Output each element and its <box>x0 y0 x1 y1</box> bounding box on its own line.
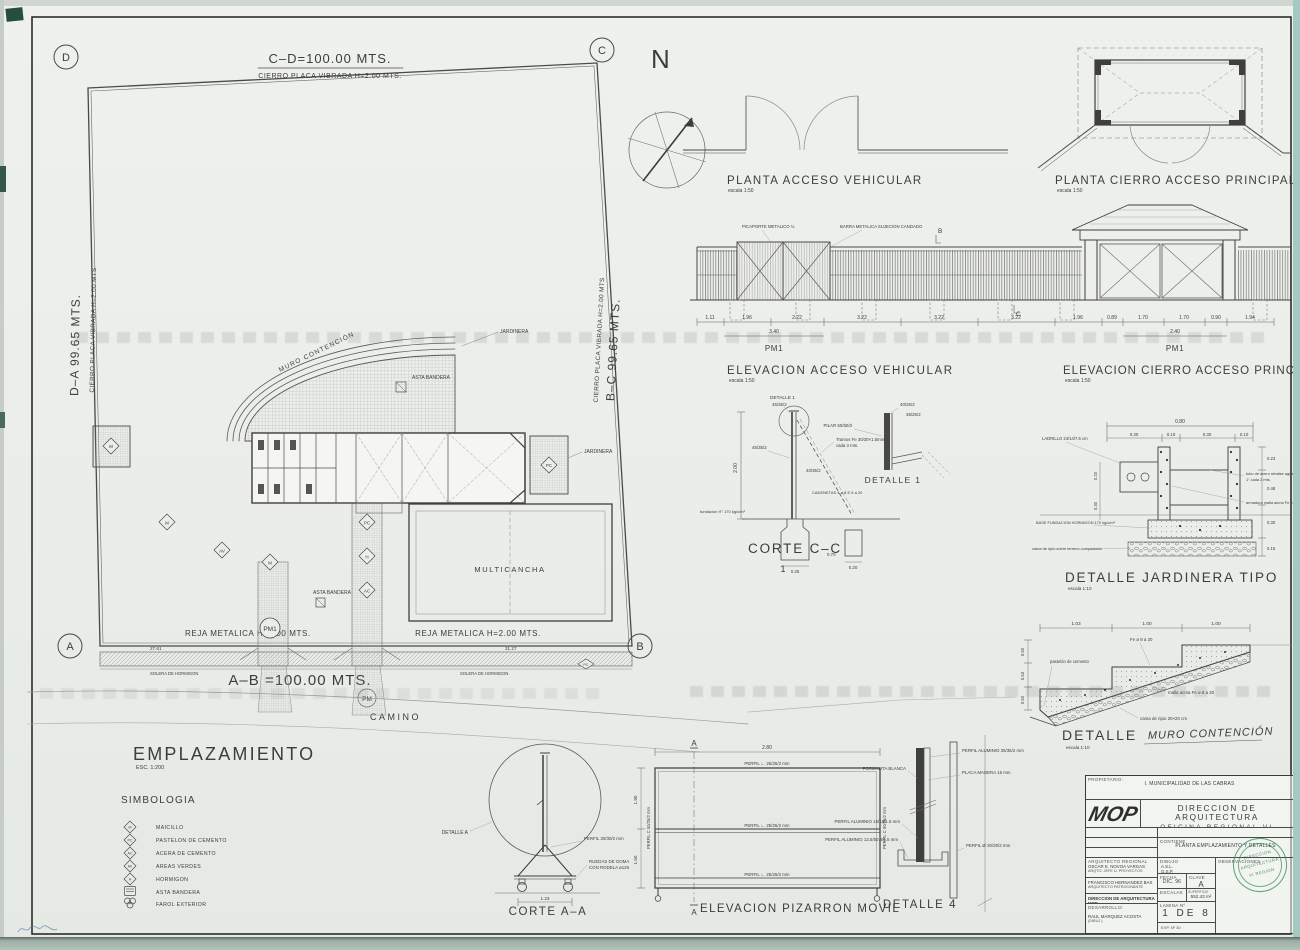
symbol-pc: PC <box>364 521 371 526</box>
pizarron-marker-top: A <box>691 739 697 748</box>
legend-sym: M <box>129 826 132 830</box>
pizarron-perfil-bot: PERFIL ∟ 25/25/2 mm <box>744 872 789 877</box>
legend-label: MAICILLO <box>156 825 183 831</box>
org-line1: DIRECCION DE ARQUITECTURA <box>1141 804 1293 822</box>
dim-bc: B–C 99.65 MTS. <box>603 298 622 401</box>
farol-icon <box>125 898 136 908</box>
detalle1-a2: 35/25/2 <box>906 412 921 417</box>
jard-dim-right: 0.30 <box>1267 520 1276 525</box>
arquitecto-title: ARQTO. JEFE U. PROYECTOS <box>1086 869 1157 873</box>
corner-d-label: D <box>62 52 70 64</box>
expediente: EXP. Nº 30 <box>1158 923 1215 930</box>
dim-sidewalk-left: 27.61 <box>150 646 162 651</box>
jard-dim-right: 0.48 <box>1267 486 1276 491</box>
muro-dim-left: 0.50 <box>1020 647 1025 656</box>
detalle1-a1: 40/25/2 <box>900 402 915 407</box>
planta-cap-title: PLANTA CIERRO ACCESO PRINCIPAL <box>1055 175 1296 187</box>
escalas-label: ESCALAS <box>1158 889 1186 895</box>
elev-av-scale: escala 1:50 <box>729 378 755 384</box>
fence-dim: 3.22 <box>857 315 867 321</box>
fence-dim: 1.94 <box>1245 315 1255 321</box>
muro-title-1: DETALLE <box>1062 727 1137 743</box>
reja-left: REJA METALICA H=2.00 MTS. <box>185 629 311 638</box>
detalle1-a3: PILAR 50/50/3 <box>823 423 852 428</box>
fence-dim: 1.96 <box>1073 315 1083 321</box>
jard-dim-left: 0.30 <box>1093 501 1098 510</box>
muro-dim-top: 1.03 <box>1071 621 1081 627</box>
fence-dim: 1.96 <box>742 315 752 321</box>
firma-line: DIRECCION DE ARQUITECTURA MOP <box>1086 894 1157 904</box>
emplazamiento-scale: ESC. 1:200 <box>136 765 164 771</box>
asta-bandera-label-2: ASTA BANDERA <box>313 590 352 596</box>
detalle-4: FORMALITA BLANCA PERFIL ALUMINIO 15/15/1… <box>825 735 1024 912</box>
scan-edge-mark <box>0 166 6 192</box>
scan-edge-mark <box>0 412 5 428</box>
drawing-sheet: D C A B C–D=100.00 MTS. CIERRO PLACA VIB… <box>0 0 1300 950</box>
detalle4-a1: FORMALITA BLANCA <box>863 766 906 771</box>
detalle4-a4: PLACA MADERA 15 mm <box>962 770 1011 775</box>
muro-a2: pastelón de cemento <box>1050 659 1090 664</box>
clave-value: A <box>1187 880 1215 889</box>
jard-tubo1: tubo de acero rebalse agua riego <box>1246 471 1300 476</box>
legend-label: AREAS VERDES <box>156 864 201 870</box>
desarrollo-name: RAUL MARQUEZ ACOSTA <box>1086 910 1157 919</box>
detalle1-title: DETALLE 1 <box>865 475 922 485</box>
detalle4-a6: PERFIL ALUMINIO 35/35/2 mm <box>962 748 1024 753</box>
planta-cap-scale: escala 1:50 <box>1057 188 1083 194</box>
north-arrow-icon: N <box>628 44 706 188</box>
corte-cc-height: 2.00 <box>733 463 739 473</box>
fence-dim: 1.11 <box>705 315 715 321</box>
symbol-av: AV <box>219 549 225 554</box>
jard-dim-top: 0.10 <box>1167 432 1176 437</box>
jard-dim-top: 0.30 <box>1130 432 1139 437</box>
jard-dim-top: 0.10 <box>1240 432 1249 437</box>
fence-dim: 3.22 <box>1011 315 1021 321</box>
corte-cc-d3: 0.20 <box>849 565 858 570</box>
jardinera-label-2: JARDINERA <box>584 449 613 455</box>
title-block: PROPIETARIO: I. MUNICIPALIDAD DE LAS CAB… <box>1085 775 1294 934</box>
solera-label-2: SOLERA DE HORMIGON <box>460 671 508 676</box>
scan-bleed-stripe <box>690 686 1270 697</box>
corte-cc-cadenetas: CADENETAS 4 ø 8 E 6 a 20 <box>812 490 863 495</box>
jard-dim-left: 0.20 <box>1093 471 1098 480</box>
muro-a1: Fe ø 8 a 20 <box>1130 637 1153 642</box>
corte-cc-brace2: cada 3 mts. <box>836 443 858 448</box>
pizarron-perfil-left: PERFIL C 50/25/2 mm <box>646 807 651 849</box>
corner-c-label: C <box>598 45 606 57</box>
jard-ladrillo: LADRILLO 24/14/7.5 cm <box>1042 436 1088 441</box>
corte-aa: DETALLE A 1.23 PERFIL 30/30/2 mm RUEDAS … <box>442 744 630 918</box>
fence-dim: 0.90 <box>1211 315 1221 321</box>
planta-acceso-vehicular: PLANTA ACCESO VEHICULAR escala 1:50 <box>683 96 1008 194</box>
pizarron-marker-bottom: A <box>691 908 697 917</box>
scan-bleed-stripe <box>40 688 600 699</box>
symbol-m-left: M <box>109 444 113 449</box>
pm1-right: PM1 <box>1166 344 1184 353</box>
fence-dim: 3.22 <box>934 315 944 321</box>
corte-aa-ruedas1: RUEDAS DE GOMA <box>589 859 629 864</box>
legend-label: ACERA DE CEMENTO <box>156 851 216 857</box>
muro-scale: escala 1:10 <box>1066 745 1090 750</box>
gate-note-1: PICAPORTE METALICO ¾ <box>742 224 795 229</box>
legend-label: ASTA BANDERA <box>156 890 200 896</box>
superficie-value: 552.43 m² <box>1187 894 1215 899</box>
elev-av-title: ELEVACION ACCESO VEHICULAR <box>727 365 954 377</box>
legend-label: PASTELON DE CEMENTO <box>156 838 227 844</box>
jard-total: 0.80 <box>1175 419 1185 425</box>
legend-label: FAROL EXTERIOR <box>156 902 206 908</box>
symbol-m-2: M <box>268 561 272 566</box>
fence-da: CIERRO PLACA VIBRADA H=2.00 MTS <box>89 267 98 392</box>
pizarron-perfil-top: PERFIL ∟ 25/25/2 mm <box>744 761 789 766</box>
fence-dim: 1.70 <box>1179 315 1189 321</box>
north-label: N <box>651 44 670 74</box>
scan-edge-bottom <box>0 937 1300 950</box>
scan-edge-left <box>0 0 4 950</box>
planta-cierro-acceso-principal: PLANTA CIERRO ACCESO PRINCIPAL escala 1:… <box>1038 48 1296 194</box>
reja-right: REJA METALICA H=2.00 MTS. <box>415 629 541 638</box>
scan-corner-mark <box>5 7 23 22</box>
jardinera-title: DETALLE JARDINERA TIPO <box>1065 570 1278 585</box>
elev-cap-scale: escala 1:50 <box>1065 378 1091 384</box>
legend-sym: AV <box>128 865 133 869</box>
symbol-m: M <box>165 521 169 526</box>
propietario-value: I. MUNICIPALIDAD DE LAS CABRAS <box>1086 782 1293 788</box>
symbol-pc-right: PC <box>546 463 553 468</box>
planta-av-scale: escala 1:50 <box>728 188 754 194</box>
corner-b-label: B <box>636 641 643 653</box>
lamina-value: 1 DE 8 <box>1158 908 1215 919</box>
pizarron-perfil-mid: PERFIL ∟ 25/25/2 mm <box>744 823 789 828</box>
simbologia-legend: SIMBOLOGIA M PC AC AV H <box>121 795 227 908</box>
corner-a-label: A <box>66 641 74 653</box>
simbologia-title: SIMBOLOGIA <box>121 795 196 806</box>
fence-cd: CIERRO PLACA VIBRADA H=2.00 MTS. <box>258 73 401 80</box>
solera-label-1: SOLERA DE HORMIGON <box>150 671 198 676</box>
pizarron-perfil-right: PERFIL C 50/25/2 mm <box>882 807 887 849</box>
jardinera-scale: escala 1:10 <box>1068 586 1092 591</box>
corte-aa-perfil: PERFIL 30/30/2 mm <box>584 836 624 841</box>
pizarron-title: ELEVACION PIZARRON MOVIL <box>700 903 900 915</box>
desarrollo-title: (DIBUJ.) <box>1086 919 1157 923</box>
corte-cc-fund: fundación H° 170 kg/c/m³ <box>700 509 746 514</box>
detalle4-a3: PERFIL ALUMINIO 13.5/50.8/1.5 mm <box>825 837 898 842</box>
detalle4-title: DETALLE 4 <box>883 899 957 911</box>
asta-bandera-label-1: ASTA BANDERA <box>412 375 451 381</box>
dim-da: D–A 99.65 MTS. <box>67 294 83 396</box>
corte-cc-title: CORTE C–C <box>748 541 842 556</box>
jard-dim-top: 0.30 <box>1203 432 1212 437</box>
pizarron-dim-w: 2.80 <box>762 745 772 751</box>
jard-dim-right: 0.23 <box>1267 456 1276 461</box>
corte-cc-num: 1 <box>780 564 785 574</box>
handwritten-mark <box>14 920 60 938</box>
corte-cc-a1: 45/35/2 <box>752 445 767 450</box>
legend-sym: PC <box>128 839 133 843</box>
detalle4-a2: PERFIL ALUMINIO 15/15/1.5 mm <box>835 819 901 824</box>
pm1-marker: PM1 <box>263 626 277 633</box>
jard-ripio: cama de ripio sobre terreno compactado <box>1032 546 1102 551</box>
fence-dim: 2.22 <box>792 315 802 321</box>
patrocinante-title: ARQUITECTO PATROCINANTE <box>1086 885 1157 889</box>
dim-cd: C–D=100.00 MTS. <box>268 51 391 66</box>
pizarron-dim-h2: 1.50 <box>633 855 638 864</box>
pm1-left: PM1 <box>765 344 783 353</box>
corte-cc-callout2: 45/35/2 <box>772 402 787 407</box>
symbol-ac: AC <box>364 589 371 594</box>
legend-label: HORMIGON <box>156 877 188 883</box>
corte-cc-brace1: Tramos Fe 30/30×1.5mm <box>836 437 885 442</box>
portico-elevation <box>1072 205 1248 300</box>
muro-title-2: MURO CONTENCIÓN <box>1148 725 1274 742</box>
corte-aa-ruedas2: CON RODELA ø125 <box>589 865 630 870</box>
elevacion-pizarron: 2.80 A A 1.90 1.50 PERFIL ∟ 25/25/2 mm P… <box>633 739 900 917</box>
elev-cap-title: ELEVACION CIERRO ACCESO PRINCIPAL <box>1063 365 1300 377</box>
emplazamiento-title-group: EMPLAZAMIENTO ESC. 1:200 <box>133 744 315 771</box>
emplazamiento-title: EMPLAZAMIENTO <box>133 744 315 764</box>
detalle-a-label: DETALLE A <box>442 830 469 836</box>
fence-dim: 1.70 <box>1138 315 1148 321</box>
fence-dim: 0.89 <box>1107 315 1117 321</box>
detalle4-a5: PERFIL Ø 30/30/2 mm <box>966 843 1011 848</box>
muro-dim-left: 0.53 <box>1020 671 1025 680</box>
scan-bleed-stripe <box>75 332 1265 343</box>
muro-dim-top: 1.00 <box>1211 621 1221 627</box>
symbol-h: H <box>365 555 368 560</box>
dim-sidewalk-right: 31.27 <box>505 646 517 651</box>
multicancha-label: MULTICANCHA <box>474 565 545 574</box>
jard-base: BASE FUNDACION HORMIGON 170 kg/c/m³ <box>1036 520 1116 525</box>
site-plan: D C A B C–D=100.00 MTS. CIERRO PLACA VIB… <box>28 38 1015 752</box>
symbol-pc-3: PC <box>583 663 589 667</box>
corte-cc-d1: 0.25 <box>791 569 800 574</box>
elevacion-cierro: PICAPORTE METALICO ¾ BARRA METALICA SUJE… <box>690 205 1300 384</box>
corte-aa-dim: 1.23 <box>541 896 550 901</box>
scan-edge-top <box>0 0 1300 6</box>
mop-logo: MOP <box>1086 803 1141 827</box>
patrocinante-name: FRANCISCO HERNANDEZ BAS <box>1086 878 1157 885</box>
jard-dim-right: 0.15 <box>1267 546 1276 551</box>
planta-av-title: PLANTA ACCESO VEHICULAR <box>727 175 923 187</box>
legend-sym: AC <box>128 852 133 856</box>
marker-b: B <box>938 228 942 235</box>
gate-note-2: BARRA METALICA SUJECION CANDADO <box>840 224 923 229</box>
fecha-value: DIC. 96 <box>1158 880 1186 886</box>
corte-cc-callout: DETALLE 1 <box>770 395 795 401</box>
jard-tubo2: 1" cada 2 mts. <box>1246 477 1271 482</box>
detalle-jardinera: 0.80 0.30 0.10 0.30 0.10 <box>1032 419 1300 591</box>
corte-aa-title: CORTE A–A <box>509 906 588 918</box>
muro-dim-top: 1.00 <box>1142 621 1152 627</box>
jard-malla: armadura malla acma Fe 6 a 20 <box>1246 500 1300 505</box>
corte-cc-a2: 40/35/2 <box>806 468 821 473</box>
scan-edge-right <box>1293 0 1300 950</box>
muro-a4: cama de ripio 20×20 cm <box>1140 716 1187 721</box>
dim-ab: A–B =100.00 MTS. <box>228 672 371 689</box>
legend-sym: H <box>129 878 132 882</box>
pizarron-dim-h1: 1.90 <box>633 795 638 804</box>
